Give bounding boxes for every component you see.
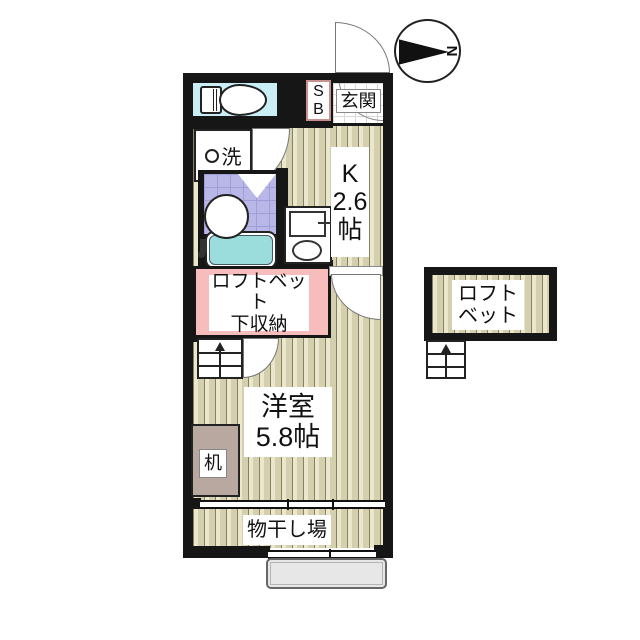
bathtub-inner bbox=[209, 235, 273, 265]
drying-area-label: 物干し場 bbox=[243, 515, 331, 545]
kitchen-label: K 2.6 帖 bbox=[331, 147, 369, 257]
loft-bed-label: ロフト ベット bbox=[452, 280, 524, 330]
loft-bed-label-line2: ベット bbox=[458, 305, 518, 327]
wall-genkan-step-line bbox=[331, 123, 383, 126]
washer-hose-circle bbox=[205, 149, 219, 163]
desk-label: 机 bbox=[199, 449, 227, 478]
stair-arrow-head bbox=[215, 342, 225, 351]
entry-door-swing bbox=[335, 22, 390, 73]
storage-label-line2: 下収納 bbox=[230, 314, 287, 335]
compass-north-text: N bbox=[444, 46, 461, 57]
compass-needle bbox=[399, 37, 449, 67]
room-window-tick-1 bbox=[287, 499, 289, 510]
storage-label: ロフトベット 下収納 bbox=[209, 275, 309, 331]
entrance-label-text: 玄関 bbox=[341, 91, 377, 111]
entrance-label: 玄関 bbox=[336, 89, 381, 113]
kitchen-sink-faucet bbox=[318, 222, 331, 224]
floor-plan: S B 玄関 洗 K 2.6 帖 ロフトベット 下収納 bbox=[0, 0, 640, 640]
loft-stair-arrow-head bbox=[441, 344, 451, 353]
wall-bottom-right-corner bbox=[374, 545, 393, 558]
faucet-knob bbox=[198, 251, 205, 258]
compass-north-label: N bbox=[444, 43, 460, 59]
loft-stair-center-line bbox=[445, 353, 447, 377]
shoe-box-label-s: S bbox=[313, 83, 324, 101]
wall-left-of-window bbox=[183, 498, 201, 509]
desk-label-text: 机 bbox=[204, 453, 222, 473]
compass: N bbox=[394, 19, 461, 83]
wall-bottom-left bbox=[183, 546, 270, 558]
kitchen-label-size: 2.6 bbox=[333, 188, 368, 216]
kitchen-sink bbox=[289, 211, 326, 237]
storage-label-line1: ロフトベット bbox=[209, 271, 309, 314]
loft-bed-label-line1: ロフト bbox=[458, 283, 518, 305]
staircase bbox=[197, 338, 243, 379]
kitchen-label-k: K bbox=[342, 160, 359, 188]
wash-basin bbox=[204, 194, 249, 239]
shoe-box-label-b: B bbox=[313, 101, 324, 119]
toilet-tank-line bbox=[213, 89, 217, 111]
washer-label: 洗 bbox=[222, 141, 242, 170]
porch-step-inner bbox=[270, 562, 383, 585]
main-room-label-line2: 5.8帖 bbox=[256, 422, 321, 452]
shoe-box: S B bbox=[306, 80, 331, 121]
kitchen-label-jo: 帖 bbox=[337, 216, 362, 244]
drying-area-label-text: 物干し場 bbox=[247, 519, 327, 541]
wall-right bbox=[383, 73, 393, 558]
main-room-label: 洋室 5.8帖 bbox=[244, 387, 332, 457]
main-room-label-line1: 洋室 bbox=[261, 392, 315, 422]
room-window-tick-2 bbox=[332, 499, 334, 510]
loft-staircase bbox=[426, 340, 466, 379]
room-window bbox=[200, 500, 385, 509]
kitchen-burner bbox=[292, 240, 322, 261]
